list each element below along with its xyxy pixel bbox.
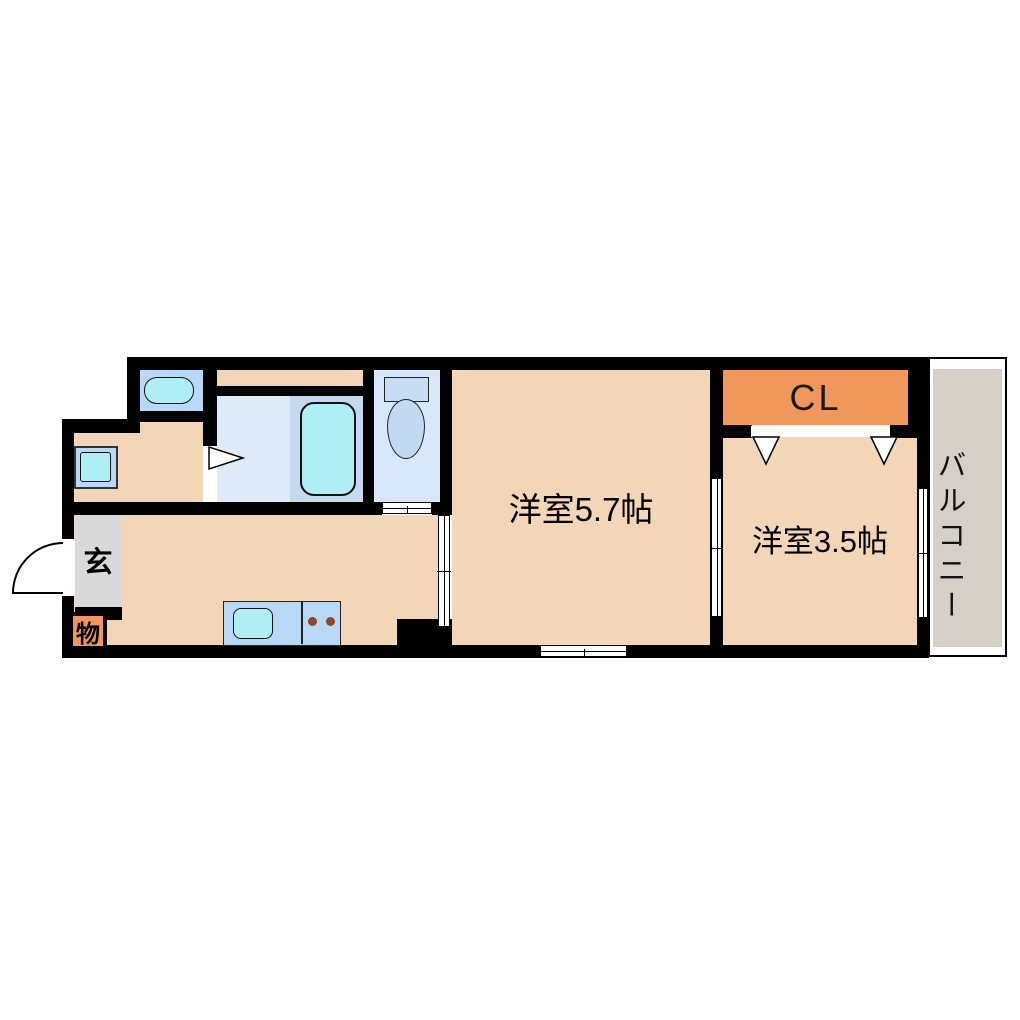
wall-bath-top (217, 386, 363, 396)
wall-mid-right (432, 502, 452, 515)
wall-mid (62, 502, 382, 515)
kitchen-counter-divider (301, 602, 303, 644)
western-room-small-label: 洋室3.5帖 (723, 519, 917, 557)
wall-toilet-right (440, 357, 452, 515)
entrance-label: 玄 (75, 543, 121, 577)
washing-machine-icon (144, 377, 194, 404)
wall-bath-toilet (363, 357, 374, 503)
kitchen-sliding-door-tick (437, 571, 451, 572)
kitchen-sink-icon (233, 608, 273, 639)
closet-label: CL (723, 370, 908, 425)
western-room-large-label: 洋室5.7帖 (452, 488, 710, 526)
closet-folding-door-icon (723, 436, 917, 468)
bottom-window-icon (540, 645, 627, 657)
entrance-door-opening (61, 539, 75, 596)
balcony-window-icon (918, 488, 928, 618)
rooms-sliding-door-icon (711, 478, 722, 617)
toilet-door-tick (407, 506, 408, 513)
vanity-basin-icon (74, 446, 118, 489)
floorplan-page: { "floor_plan": { "rooms": { "entrance":… (0, 0, 1020, 1020)
bathtub-icon (300, 402, 356, 496)
floor-plan: 物 バルコニー 玄 洋室5.7帖 洋室3.5帖 CL (0, 0, 1020, 1020)
wall-bottom (62, 645, 929, 658)
toilet-door-icon (382, 502, 432, 514)
storage-box: 物 (69, 612, 107, 650)
entrance-door-arc-icon (12, 542, 63, 593)
storage-label: 物 (76, 614, 100, 649)
balcony-label: バルコニー (936, 420, 970, 655)
bath-top-strip (217, 370, 363, 386)
wall-laundry-bottom (138, 411, 203, 422)
rooms-sliding-door-tick (710, 548, 723, 549)
wall-laundry-right (203, 368, 217, 446)
bottom-window-tick (584, 649, 585, 656)
wall-top (127, 357, 929, 370)
entrance-door-leaf-icon (12, 592, 63, 594)
kitchen-sliding-door-icon (438, 515, 450, 627)
stove-burner-icon (308, 617, 317, 626)
vanity-basin-bowl (80, 452, 111, 482)
wall-left-upper (62, 419, 74, 540)
bathroom-door-swing-icon (205, 443, 250, 473)
kitchen-counter-icon (223, 601, 341, 646)
stove-burner-icon (326, 617, 335, 626)
